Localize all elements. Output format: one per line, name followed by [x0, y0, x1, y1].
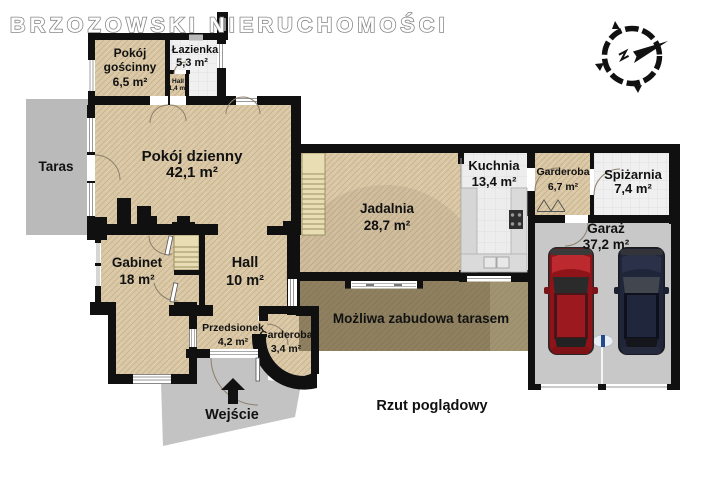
svg-text:Jadalnia: Jadalnia: [360, 201, 415, 216]
svg-text:Hall: Hall: [232, 255, 259, 271]
svg-text:18 m²: 18 m²: [119, 272, 155, 287]
svg-text:gościnny: gościnny: [104, 60, 157, 74]
svg-text:6,5 m²: 6,5 m²: [113, 75, 148, 89]
svg-text:Spiżarnia: Spiżarnia: [604, 167, 663, 182]
svg-text:4,2 m²: 4,2 m²: [218, 336, 249, 348]
svg-text:Pokój dzienny: Pokój dzienny: [142, 148, 244, 165]
svg-text:5,3 m²: 5,3 m²: [176, 57, 208, 69]
svg-text:Łazienka: Łazienka: [172, 44, 219, 56]
svg-text:37,2 m²: 37,2 m²: [583, 237, 630, 252]
svg-text:Pokój: Pokój: [114, 46, 147, 60]
svg-text:42,1 m²: 42,1 m²: [166, 164, 218, 181]
svg-text:6,7 m²: 6,7 m²: [548, 181, 579, 193]
svg-text:13,4 m²: 13,4 m²: [472, 174, 517, 189]
svg-text:Gabinet: Gabinet: [112, 255, 163, 270]
svg-text:28,7 m²: 28,7 m²: [364, 218, 411, 233]
svg-text:Garaż: Garaż: [587, 221, 625, 236]
svg-text:Wejście: Wejście: [205, 407, 259, 423]
svg-text:Rzut poglądowy: Rzut poglądowy: [376, 398, 487, 414]
svg-text:Przedsionek: Przedsionek: [202, 322, 264, 334]
svg-text:Garderoba: Garderoba: [536, 166, 589, 178]
svg-text:Hall: Hall: [172, 78, 184, 85]
svg-text:Taras: Taras: [38, 159, 73, 174]
svg-text:1,4 m²: 1,4 m²: [169, 85, 189, 92]
svg-text:BRZOZOWSKI NIERUCHOMOŚCI: BRZOZOWSKI NIERUCHOMOŚCI: [10, 12, 449, 37]
svg-text:10 m²: 10 m²: [226, 273, 264, 289]
svg-text:Kuchnia: Kuchnia: [468, 158, 520, 173]
svg-text:Możliwa zabudowa tarasem: Możliwa zabudowa tarasem: [333, 311, 509, 326]
svg-text:7,4 m²: 7,4 m²: [614, 181, 652, 196]
svg-text:3,4 m²: 3,4 m²: [271, 343, 302, 355]
svg-text:Garderoba: Garderoba: [259, 329, 312, 341]
